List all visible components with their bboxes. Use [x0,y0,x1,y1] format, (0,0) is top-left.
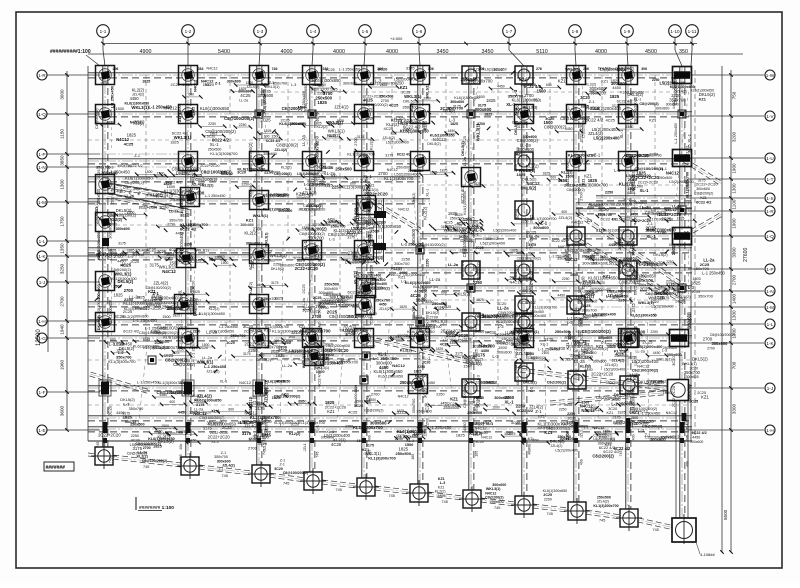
svg-text:C8@100/200(2): C8@100/200(2) [142,459,168,463]
svg-text:1-P: 1-P [38,152,45,157]
svg-text:WKL3(1): WKL3(1) [95,203,99,216]
svg-text:1940: 1940 [60,324,65,335]
svg-text:C8@200(2): C8@200(2) [694,192,713,196]
svg-text:4450: 4450 [155,429,163,433]
svg-text:2700: 2700 [579,191,584,200]
svg-text:3175: 3175 [187,359,195,363]
svg-text:1825: 1825 [420,425,428,429]
svg-text:300x600: 300x600 [632,241,636,256]
svg-text:2250: 2250 [184,243,192,247]
svg-text:300x600: 300x600 [497,349,513,354]
svg-text:1-11: 1-11 [688,29,697,34]
svg-text:1825: 1825 [677,217,685,221]
svg-text:5400: 5400 [218,49,230,55]
svg-text:600: 600 [228,408,234,412]
svg-text:745: 745 [494,506,500,510]
svg-text:250x500: 250x500 [396,451,412,456]
svg-text:40b: 40b [632,434,636,440]
svg-text:C8@200(2): C8@200(2) [639,102,659,106]
svg-text:1400: 1400 [732,293,737,304]
svg-text:KL2(2): KL2(2) [619,182,633,187]
svg-text:600: 600 [289,335,295,339]
svg-text:600: 600 [188,93,194,97]
svg-text:6C22 4/2: 6C22 4/2 [696,200,711,204]
svg-text:2C25: 2C25 [646,225,657,230]
svg-text:4450: 4450 [130,96,140,101]
svg-text:1825: 1825 [317,100,327,105]
svg-text:C8@200(2): C8@200(2) [544,125,567,130]
svg-text:6C22 4/2: 6C22 4/2 [519,300,536,305]
svg-text:6C22 4/2: 6C22 4/2 [552,239,566,243]
svg-text:5110: 5110 [536,49,548,55]
svg-text:KL6(1)300x650: KL6(1)300x650 [405,281,431,285]
svg-text:745: 745 [442,500,448,504]
svg-text:KL2(2): KL2(2) [423,206,428,220]
svg-text:40b: 40b [179,444,183,450]
svg-text:KZ1: KZ1 [538,414,544,418]
svg-text:4450: 4450 [565,127,573,131]
svg-text:N4C12: N4C12 [162,269,176,274]
svg-text:4450: 4450 [448,129,456,133]
svg-text:250x500: 250x500 [361,345,375,349]
svg-text:6C22 4/2: 6C22 4/2 [692,431,707,435]
svg-text:2250: 2250 [190,298,198,302]
svg-text:L-1 250x450: L-1 250x450 [428,425,452,430]
svg-text:LL-2a: LL-2a [253,329,262,333]
svg-text:250x500: 250x500 [571,242,587,247]
svg-text:1-S: 1-S [766,196,773,201]
svg-text:600: 600 [318,84,324,88]
svg-text:1825: 1825 [142,80,150,84]
svg-text:WKL3(1): WKL3(1) [114,272,132,277]
svg-text:1-V: 1-V [766,114,774,119]
svg-text:3175: 3175 [118,242,126,246]
svg-text:745: 745 [389,494,395,498]
svg-text:1-K: 1-K [38,254,46,259]
svg-text:1500: 1500 [513,364,518,374]
svg-text:2C25: 2C25 [652,380,663,385]
svg-text:1500: 1500 [116,349,124,353]
svg-text:4450: 4450 [360,216,368,220]
svg-text:KL2(2): KL2(2) [256,297,267,301]
svg-text:KZ1: KZ1 [700,196,707,200]
svg-text:4450: 4450 [609,242,619,247]
svg-text:XL-1: XL-1 [687,133,692,142]
svg-text:N4C12: N4C12 [164,106,178,111]
svg-text:C8@200(2): C8@200(2) [498,311,518,315]
svg-text:3C20: 3C20 [566,225,574,229]
svg-text:350x700: 350x700 [117,163,133,168]
svg-text:Z-1: Z-1 [610,437,617,442]
svg-text:2C25: 2C25 [187,307,197,312]
svg-text:2C22+2C20: 2C22+2C20 [200,164,219,168]
svg-text:300x600: 300x600 [96,188,101,205]
svg-text:1500: 1500 [617,343,627,348]
svg-text:1900: 1900 [732,163,737,174]
svg-text:165: 165 [411,454,415,460]
svg-text:1825: 1825 [192,290,200,294]
svg-text:KL6(1)300x650: KL6(1)300x650 [407,329,435,334]
svg-text:600: 600 [626,257,632,261]
svg-text:KL2(2): KL2(2) [209,307,220,311]
svg-text:LL-2a: LL-2a [239,98,248,102]
svg-text:306: 306 [641,67,647,71]
svg-text:L-1 250x450: L-1 250x450 [702,271,725,276]
svg-text:XL-1: XL-1 [505,399,515,404]
svg-text:1-3: 1-3 [257,29,264,34]
svg-text:KZ1: KZ1 [400,85,408,90]
svg-text:300x600: 300x600 [650,437,667,442]
svg-text:4450: 4450 [257,284,265,288]
svg-text:600: 600 [274,339,280,343]
svg-text:#######: ####### [46,465,66,471]
svg-text:1-L: 1-L [39,239,46,244]
svg-text:3175: 3175 [631,302,636,312]
svg-text:4C25: 4C25 [124,141,134,146]
svg-text:1500: 1500 [671,245,676,255]
svg-text:XL-1: XL-1 [422,355,432,360]
svg-text:350x700: 350x700 [698,294,714,299]
svg-text:2C22+2C20: 2C22+2C20 [564,183,586,188]
svg-text:DKL5(2): DKL5(2) [427,142,441,146]
svg-text:600: 600 [546,83,552,87]
svg-text:350: 350 [679,49,688,55]
svg-text:Z-1: Z-1 [269,81,274,85]
svg-text:C8@100/200(2): C8@100/200(2) [283,471,309,475]
svg-text:1-U: 1-U [766,156,773,161]
svg-text:4450: 4450 [176,232,184,236]
svg-text:2C25: 2C25 [325,166,334,170]
svg-text:2C22+2C20: 2C22+2C20 [208,434,231,439]
svg-text:350x700: 350x700 [264,344,281,349]
svg-text:2250: 2250 [208,122,216,126]
svg-text:40b: 40b [368,435,372,441]
svg-text:1825: 1825 [314,122,322,126]
svg-text:JZL4(2): JZL4(2) [343,324,357,328]
svg-text:KL6(1)300x650: KL6(1)300x650 [200,106,230,111]
svg-text:3C20: 3C20 [612,104,621,108]
svg-text:L5(2)200x400: L5(2)200x400 [493,229,516,233]
svg-text:C8@100/200(2): C8@100/200(2) [517,257,541,261]
svg-text:2C25: 2C25 [97,170,101,179]
svg-text:300x600: 300x600 [611,81,628,86]
svg-text:JZL4(2): JZL4(2) [302,191,317,196]
svg-text:DKL5(2): DKL5(2) [521,185,537,190]
svg-text:2C22+2C20: 2C22+2C20 [295,266,319,271]
svg-text:2250: 2250 [475,313,485,318]
svg-text:C8@100/200(2): C8@100/200(2) [157,326,188,331]
svg-text:1-M: 1-M [38,200,46,205]
svg-text:1-Q: 1-Q [38,112,46,117]
svg-text:250x500: 250x500 [411,228,416,245]
svg-text:300x600: 300x600 [475,107,492,112]
svg-text:1-N: 1-N [766,289,773,294]
svg-text:2C22+2C20: 2C22+2C20 [370,306,374,325]
svg-text:2C25: 2C25 [354,404,363,408]
svg-text:KL6(1)300x650: KL6(1)300x650 [374,369,404,374]
svg-text:1-4: 1-4 [310,29,317,34]
svg-text:300x600: 300x600 [370,421,387,426]
svg-text:2250: 2250 [328,220,336,224]
svg-text:JZL4(2): JZL4(2) [443,109,455,113]
svg-text:1500: 1500 [492,405,500,409]
svg-text:2C25: 2C25 [463,136,467,145]
svg-text:LL-2a: LL-2a [429,277,440,282]
svg-text:1500: 1500 [161,424,169,428]
svg-text:L5(2)200x400: L5(2)200x400 [565,248,592,253]
svg-text:4450: 4450 [180,213,190,218]
svg-text:L-1 250x450: L-1 250x450 [674,123,678,144]
svg-text:2C25: 2C25 [130,260,139,264]
svg-text:4450: 4450 [479,431,487,435]
svg-text:KL6(1)300x650: KL6(1)300x650 [199,312,225,316]
svg-text:4450: 4450 [354,385,358,393]
svg-text:2700: 2700 [359,153,368,158]
svg-text:LL-2a: LL-2a [301,334,310,338]
svg-text:3175: 3175 [271,281,279,285]
svg-text:JZL4(2): JZL4(2) [206,369,220,373]
svg-text:1500: 1500 [246,81,254,85]
svg-text:N4C12: N4C12 [193,411,207,416]
svg-text:1825: 1825 [264,129,272,133]
svg-text:1960: 1960 [60,359,65,370]
svg-text:4C25: 4C25 [475,246,484,250]
svg-text:3175: 3175 [464,338,472,342]
svg-text:40b: 40b [528,449,532,455]
svg-text:1825: 1825 [460,248,468,252]
svg-text:KL1(3)300x700: KL1(3)300x700 [359,278,386,282]
svg-text:KL2(2): KL2(2) [359,112,370,116]
svg-text:2C25: 2C25 [689,400,698,404]
svg-text:2250: 2250 [652,78,660,82]
svg-text:300x600: 300x600 [246,242,261,246]
svg-text:1-R: 1-R [766,209,774,214]
svg-text:XL-1: XL-1 [634,98,642,102]
svg-text:250x500: 250x500 [616,202,633,207]
svg-text:1-6: 1-6 [416,29,423,34]
svg-text:2C22+2C20: 2C22+2C20 [495,332,517,337]
svg-text:600: 600 [523,276,529,280]
svg-text:KL1(3)300x700: KL1(3)300x700 [589,202,616,207]
svg-text:1500: 1500 [187,256,195,260]
svg-text:1825: 1825 [380,83,388,87]
svg-text:6C22 4/2: 6C22 4/2 [614,446,631,451]
svg-text:3C20: 3C20 [274,467,283,471]
svg-text:600: 600 [352,255,358,259]
svg-text:250x500: 250x500 [162,304,179,309]
svg-text:3C20: 3C20 [338,348,349,353]
svg-text:L5(2)200x400: L5(2)200x400 [522,313,547,318]
svg-text:1-8: 1-8 [572,29,579,34]
svg-text:N4C12: N4C12 [207,67,218,71]
svg-text:WKL3(1): WKL3(1) [515,107,531,112]
svg-text:2C25: 2C25 [527,230,536,234]
svg-text:350x700: 350x700 [558,435,572,439]
svg-text:KL1(3)300x700: KL1(3)300x700 [108,359,136,364]
svg-text:L-1 250x450: L-1 250x450 [110,85,115,108]
svg-text:KZ1: KZ1 [519,78,526,82]
svg-text:1150: 1150 [60,129,65,139]
svg-text:1825: 1825 [416,297,426,302]
svg-text:2C22+2C20: 2C22+2C20 [671,385,676,407]
svg-text:L-1 250x450: L-1 250x450 [133,318,158,323]
svg-text:745: 745 [336,488,342,492]
svg-text:4450: 4450 [441,402,449,406]
svg-text:LL-2a: LL-2a [640,205,652,210]
svg-text:KL2(2): KL2(2) [400,348,413,353]
svg-text:745: 745 [599,519,605,523]
svg-text:L-3: L-3 [565,235,570,242]
svg-text:1500: 1500 [626,125,634,129]
svg-text:1-P: 1-P [766,267,773,272]
svg-text:L5(2)200x400: L5(2)200x400 [600,68,623,72]
svg-text:DKL5(2): DKL5(2) [118,279,134,284]
svg-text:2700: 2700 [114,254,124,259]
svg-text:3175: 3175 [357,135,365,139]
svg-text:C8@200(2): C8@200(2) [276,142,299,147]
svg-text:JZL4(2): JZL4(2) [318,322,322,334]
svg-text:2C25: 2C25 [301,284,306,293]
svg-text:L-3: L-3 [319,357,326,362]
svg-text:2250: 2250 [215,255,223,259]
svg-text:WKL3(1): WKL3(1) [131,105,149,110]
svg-text:2250: 2250 [177,348,185,352]
svg-text:N4C12: N4C12 [634,326,638,337]
svg-text:KL6(1)300x650: KL6(1)300x650 [304,85,308,111]
svg-text:XL-1: XL-1 [317,340,325,344]
svg-text:KZ1: KZ1 [601,79,608,84]
svg-text:4450: 4450 [379,303,387,307]
svg-text:KL1(3)300x700: KL1(3)300x700 [624,154,648,158]
svg-text:350x700: 350x700 [394,261,410,266]
svg-text:WKL3(1): WKL3(1) [476,123,481,141]
svg-text:2C22+2C20: 2C22+2C20 [696,182,718,187]
svg-text:XL-1: XL-1 [210,142,219,147]
svg-text:300x600: 300x600 [655,107,670,111]
svg-text:250x500: 250x500 [170,197,185,202]
svg-text:2250: 2250 [309,341,317,345]
svg-text:3C20: 3C20 [475,329,485,334]
svg-text:C8@200(2): C8@200(2) [311,348,333,353]
svg-text:LL-2a: LL-2a [617,263,622,275]
svg-text:3C20: 3C20 [365,116,374,120]
svg-text:300x600: 300x600 [343,82,357,86]
svg-text:KL1(3)300x700: KL1(3)300x700 [298,420,326,425]
svg-text:2250: 2250 [362,196,372,201]
svg-text:N4C12: N4C12 [571,221,583,225]
svg-text:1300: 1300 [732,310,737,321]
svg-text:XL-1: XL-1 [303,240,308,250]
svg-text:XL-1: XL-1 [193,312,201,316]
svg-text:KL2(2): KL2(2) [281,166,292,170]
svg-text:600: 600 [194,398,200,402]
svg-text:350x700: 350x700 [606,381,619,385]
svg-text:2C22+2C20: 2C22+2C20 [298,207,320,212]
svg-text:2C25: 2C25 [271,350,279,354]
svg-text:N4C12: N4C12 [573,339,587,344]
svg-text:3C20: 3C20 [423,387,428,398]
svg-text:2C22+2C20: 2C22+2C20 [139,206,158,210]
svg-text:1825: 1825 [484,112,492,116]
svg-text:WKL3(1): WKL3(1) [194,249,210,253]
svg-text:2250: 2250 [167,222,175,226]
svg-text:1825: 1825 [192,106,196,115]
svg-text:1825: 1825 [473,182,481,186]
svg-text:C8@200(2): C8@200(2) [642,424,663,429]
svg-text:LL-2a: LL-2a [636,349,645,353]
svg-text:1500: 1500 [301,360,309,364]
svg-text:3175: 3175 [366,443,374,447]
svg-text:1825: 1825 [210,132,218,136]
svg-text:DKL5(2): DKL5(2) [692,357,708,362]
svg-text:4450: 4450 [497,84,505,88]
svg-text:Z-1: Z-1 [626,378,632,382]
svg-text:3175: 3175 [455,352,463,356]
svg-text:1825: 1825 [543,171,551,175]
svg-text:LL-2a: LL-2a [282,363,293,368]
svg-text:3175: 3175 [347,235,355,239]
svg-text:2250: 2250 [345,425,353,429]
svg-text:L5(2)200x400: L5(2)200x400 [604,367,625,371]
svg-text:3175: 3175 [423,345,431,349]
svg-text:LL-2a: LL-2a [529,235,540,239]
svg-text:4-108##: 4-108## [700,552,715,557]
svg-text:LL-2a: LL-2a [169,210,178,214]
svg-text:XL-1: XL-1 [640,188,650,193]
svg-text:L-3: L-3 [128,254,134,259]
svg-text:300x600: 300x600 [666,103,679,107]
svg-text:3C20: 3C20 [410,103,414,112]
svg-text:6C22 4/2: 6C22 4/2 [397,153,411,157]
svg-text:4C25: 4C25 [345,333,354,337]
svg-text:300x600: 300x600 [687,312,692,328]
svg-text:4C25: 4C25 [348,410,357,415]
svg-text:KZ1: KZ1 [558,79,566,84]
svg-text:KZ1: KZ1 [699,98,707,102]
svg-text:JZL4(2): JZL4(2) [412,193,416,205]
svg-text:2250: 2250 [127,210,135,214]
svg-text:3175: 3175 [196,403,204,407]
svg-text:1825: 1825 [399,305,407,309]
svg-text:DKL5(2): DKL5(2) [256,357,272,362]
svg-text:1-E: 1-E [38,428,45,433]
svg-text:DKL5(2): DKL5(2) [96,315,101,331]
svg-text:745: 745 [686,435,690,441]
svg-text:KL6(1)300x650: KL6(1)300x650 [263,207,290,212]
svg-text:2C22+2C20: 2C22+2C20 [591,372,614,377]
svg-text:4450: 4450 [612,86,620,90]
svg-text:2250: 2250 [239,123,247,127]
svg-text:3C20: 3C20 [108,405,113,416]
svg-text:L-3: L-3 [291,83,296,87]
svg-text:1300: 1300 [732,183,737,194]
svg-text:L5(2)200x400: L5(2)200x400 [386,140,409,144]
svg-text:WKL3(1): WKL3(1) [265,233,269,247]
svg-text:XL-1: XL-1 [315,425,320,433]
svg-text:300x600: 300x600 [296,196,309,200]
svg-text:1-H: 1-H [766,428,773,433]
svg-text:C8@100/200(2): C8@100/200(2) [462,379,467,408]
svg-text:JZL4(2): JZL4(2) [558,215,572,220]
svg-text:1825: 1825 [337,119,345,123]
svg-text:1825: 1825 [302,226,310,230]
svg-text:C8@200(2): C8@200(2) [94,108,99,129]
svg-text:2700: 2700 [732,274,737,285]
svg-text:1825: 1825 [510,248,518,252]
svg-text:2250: 2250 [423,97,431,101]
svg-text:L5(2)200x400: L5(2)200x400 [626,173,652,178]
svg-text:3175: 3175 [262,432,267,442]
